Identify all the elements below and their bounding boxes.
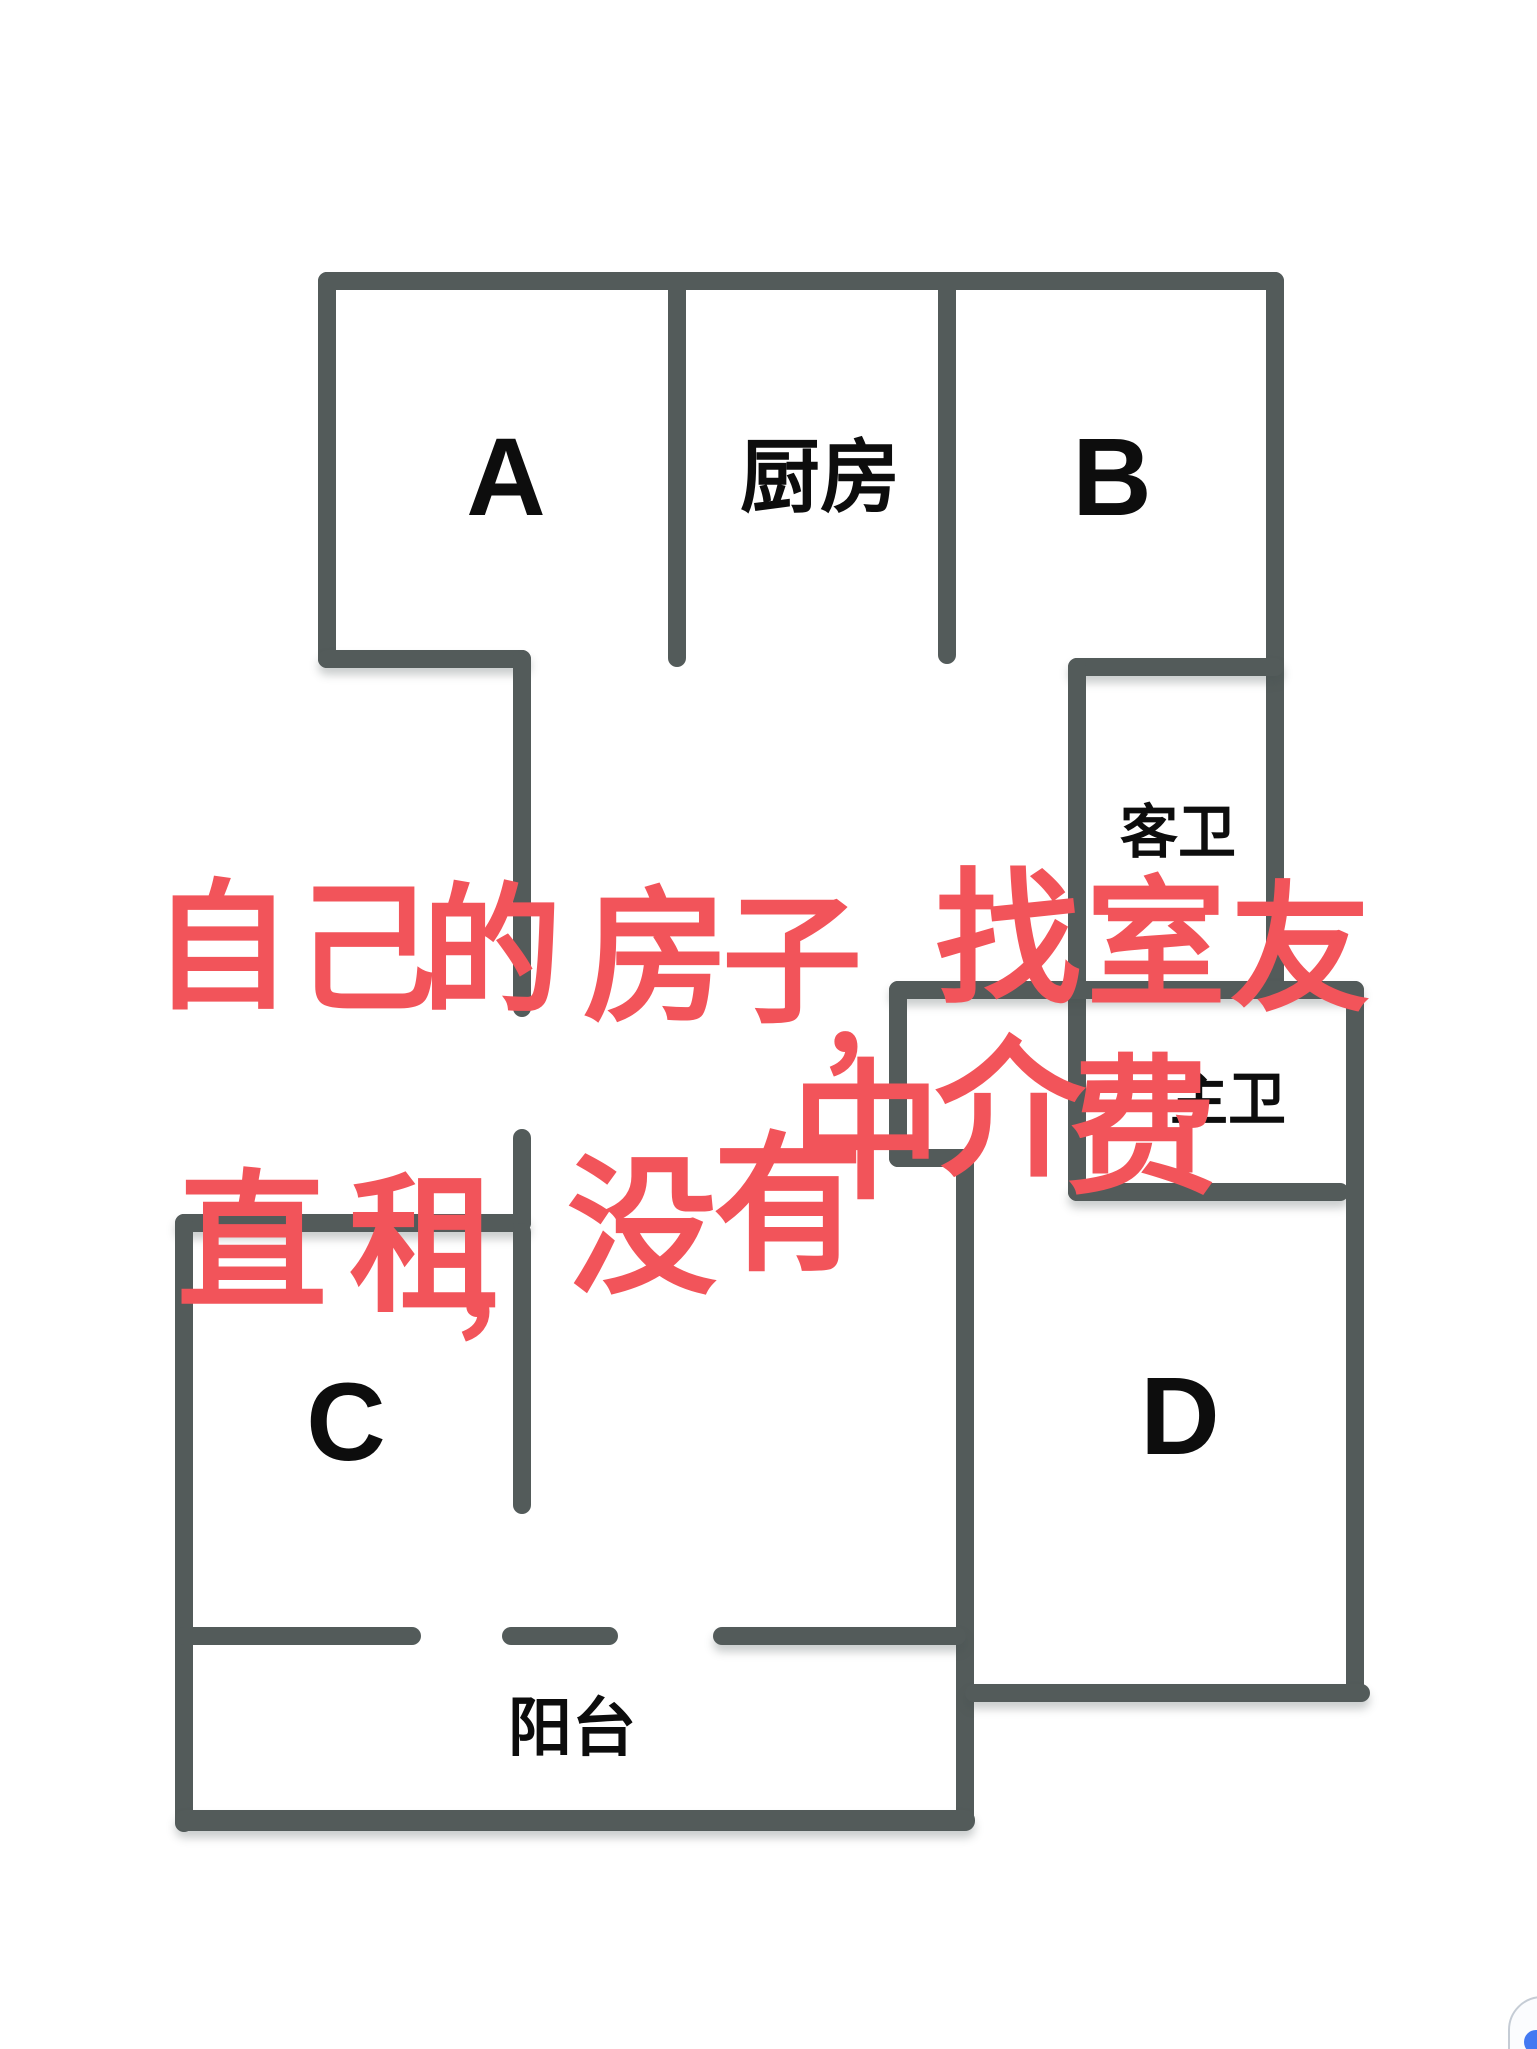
note-line1-char: 自 <box>152 878 292 1018</box>
note-line2-char: ， <box>448 1225 568 1345</box>
floorplan-image: A厨房B客卫主卫CD阳台 自己的房子，找室友直租，没有中介费 <box>0 0 1537 2049</box>
note-line1-char: 找 <box>935 867 1081 1013</box>
note-line2-char: 直 <box>177 1168 327 1318</box>
note-line2-char: 介 <box>935 1035 1085 1185</box>
note-line1-char: 己 <box>296 880 436 1020</box>
note-line2-char: 中 <box>791 1058 941 1208</box>
handwritten-note: 自己的房子，找室友直租，没有中介费 <box>0 0 1537 2049</box>
note-line1-char: 房 <box>583 885 729 1031</box>
note-line1-char: 友 <box>1230 880 1370 1020</box>
corner-widget-icon <box>1524 2030 1537 2049</box>
note-line2-char: 费 <box>1067 1053 1217 1203</box>
note-line1-char: 室 <box>1086 875 1226 1015</box>
note-line2-char: 没 <box>567 1153 717 1303</box>
note-line1-char: 的 <box>422 882 562 1022</box>
